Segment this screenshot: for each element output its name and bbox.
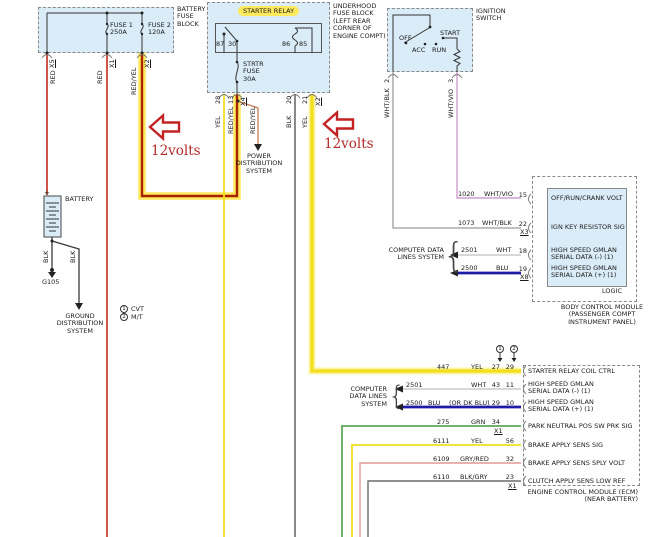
ecm-pin-29b: 29 <box>488 400 500 407</box>
wire-color-redyel-branch: RED/YEL <box>250 106 257 134</box>
12volts-note-1: 12volts <box>151 143 201 159</box>
bcm-desc-gmlan-plus: HIGH SPEED GMLAN SERIAL DATA (+) (1) <box>551 265 617 280</box>
wire-color-red-2: RED <box>97 70 104 84</box>
ecm-desc-brake-sply: BRAKE APPLY SENS SPLY VOLT <box>528 460 625 467</box>
bcm-color-blu: BLU <box>496 265 509 272</box>
legend-2-icon: 2 <box>120 313 128 321</box>
internal-circuit-lines <box>47 13 514 358</box>
terminal-20: 20 <box>286 96 293 104</box>
ecm-datalines-label: COMPUTER DATA LINES SYSTEM <box>337 386 387 408</box>
wiring-diagram: BATTERY FUSE BLOCK FUSE 1 250A FUSE 2 12… <box>0 0 650 537</box>
bcm-color-wht: WHT <box>496 247 511 254</box>
underhood-fuse-block-title: UNDERHOOD FUSE BLOCK (LEFT REAR CORNER O… <box>333 3 386 40</box>
strtr-fuse-element <box>236 62 238 82</box>
connector-x1-label: X1 <box>109 59 116 68</box>
battery-symbol <box>44 196 61 237</box>
fuse1-label: FUSE 1 250A <box>110 22 133 37</box>
wire-color-blk-gnd: BLK <box>70 251 77 263</box>
relay-pin-85: 85 <box>299 41 307 48</box>
ignition-terminal-3: 3 <box>448 79 455 83</box>
ignition-switch-title: IGNITION SWITCH <box>476 8 506 23</box>
bcm-pin-15: 15 <box>514 192 527 199</box>
ecm-caption: ENGINE CONTROL MODULE (ECM) (NEAR BATTER… <box>492 489 638 504</box>
ecm-color-wht: WHT <box>471 382 486 389</box>
wire-color-yel-87: YEL <box>215 116 222 128</box>
ecm-pin-10: 10 <box>502 400 514 407</box>
wire-color-redyel: RED/YEL <box>131 67 138 95</box>
wire-whtvio <box>457 72 521 198</box>
terminal-28: 28 <box>215 96 222 104</box>
starter-relay-label: STARTER RELAY <box>238 6 299 16</box>
legend-2-label: M/T <box>131 314 143 321</box>
battery-label: BATTERY <box>65 196 93 203</box>
ecm-column-arrow-stems <box>500 353 514 358</box>
fuse1-element <box>106 24 108 34</box>
ecm-color-yel-6111: YEL <box>471 438 483 445</box>
terminal-21: 21 <box>302 96 309 104</box>
connector-x5-label: X5 <box>49 59 56 68</box>
relay-pin-87: 87 <box>216 41 224 48</box>
ecm-brace: { <box>388 383 405 410</box>
wire-color-red-1: RED <box>50 70 57 84</box>
ecm-circuit-447: 447 <box>437 364 449 371</box>
ecm-circuit-6111: 6111 <box>433 438 450 445</box>
bcm-desc-ign-key: IGN KEY RESISTOR SIG <box>551 224 625 231</box>
bcm-circuit-2500: 2500 <box>461 265 478 272</box>
ecm-col2-mark-icon: 2 <box>510 345 518 353</box>
ignition-pos-off: OFF <box>399 35 412 42</box>
connector-x2b-label: X2 <box>315 97 322 106</box>
bcm-color-whtvio: WHT/VIO <box>484 191 513 198</box>
battery-fuse-block-title: BATTERY FUSE BLOCK <box>177 6 205 28</box>
ecm-desc-brake-sig: BRAKE APPLY SENS SIG <box>528 442 603 449</box>
bcm-circuit-2501: 2501 <box>461 247 478 254</box>
ecm-circuit-2501: 2501 <box>406 382 423 389</box>
ground-dist-arrow <box>75 303 83 310</box>
wire-color-blk-86: BLK <box>286 116 293 128</box>
ecm-circuit-6109: 6109 <box>433 456 450 463</box>
ecm-col1-mark-icon: 1 <box>496 345 504 353</box>
12volts-arrow-icon-1 <box>150 116 179 139</box>
wire-color-blk-g105: BLK <box>43 251 50 263</box>
ground-distribution-label: GROUND DISTRIBUTION SYSTEM <box>49 313 111 335</box>
ecm-pin-11: 11 <box>502 382 514 389</box>
ecm-pin-56: 56 <box>502 438 514 445</box>
relay-pin-30: 30 <box>228 41 236 48</box>
ecm-desc-gmlan-minus: HIGH SPEED GMLAN SERIAL DATA (-) (1) <box>528 381 594 396</box>
ecm-pin-27: 27 <box>488 364 500 371</box>
ecm-pin-43: 43 <box>488 382 500 389</box>
wires <box>47 53 521 537</box>
strtr-fuse-label: STRTR FUSE 30A <box>243 61 264 83</box>
power-distribution-label: POWER DISTRIBUTION SYSTEM <box>232 153 286 175</box>
ecm-connector-x1a: X1 <box>494 428 503 435</box>
connector-x2-label: X2 <box>144 59 151 68</box>
ignition-resistor <box>454 49 460 72</box>
ecm-circuit-275: 275 <box>437 419 449 426</box>
fuse2-element <box>141 24 143 34</box>
ecm-circuit-6110: 6110 <box>433 474 450 481</box>
junction-dots <box>46 12 445 273</box>
ecm-pin-29a: 29 <box>502 364 514 371</box>
wire-color-redyel-30: RED/YEL <box>228 106 235 134</box>
ignition-pos-start: START <box>440 30 460 37</box>
ground-ref-g105: G105 <box>42 279 59 286</box>
bcm-caption: BODY CONTROL MODULE (PASSENGER COMPT INS… <box>547 304 650 326</box>
legend-1-icon: 1 <box>120 305 128 313</box>
bcm-logic-label: LOGIC <box>601 288 623 295</box>
ecm-color-gryred: GRY/RED <box>460 456 489 463</box>
relay-pin-86: 86 <box>282 41 290 48</box>
ecm-col1-arrow <box>498 358 503 362</box>
bcm-desc-off-run-crank: OFF/RUN/CRANK VOLT <box>551 195 623 202</box>
ignition-pos-acc: ACC <box>412 47 425 54</box>
wire-color-yel-85: YEL <box>302 116 309 128</box>
ecm-color-note: (OR DK BLU) <box>449 400 490 407</box>
ecm-circuit-2500: 2500 <box>406 400 423 407</box>
ecm-pin-23: 23 <box>502 474 514 481</box>
ignition-pos-run: RUN <box>432 47 446 54</box>
ecm-desc-park-neutral: PARK NEUTRAL POS SW PRK SIG <box>528 423 633 430</box>
terminal-13: 13 <box>228 96 235 104</box>
ignition-terminal-2: 2 <box>384 79 391 83</box>
relay-coil <box>293 28 298 46</box>
wire-color-whtvio: WHT/VIO <box>448 89 455 118</box>
bcm-connector-x3: X3 <box>520 229 529 236</box>
12volts-note-2: 12volts <box>324 136 374 152</box>
power-dist-arrow <box>254 144 262 151</box>
ecm-color-blu: BLU <box>428 400 441 407</box>
ecm-desc-clutch-low-ref: CLUTCH APPLY SENS LOW REF <box>528 478 625 485</box>
wire-color-whtblk: WHT/BLK <box>384 88 391 118</box>
ecm-pin-34: 34 <box>488 419 500 426</box>
bcm-color-whtblk: WHT/BLK <box>482 220 512 227</box>
bcm-circuit-1020: 1020 <box>458 191 475 198</box>
ecm-col2-arrow <box>512 358 517 362</box>
ecm-color-grn: GRN <box>471 419 485 426</box>
ecm-desc-gmlan-plus: HIGH SPEED GMLAN SERIAL DATA (+) (1) <box>528 399 594 414</box>
fuse2-label: FUSE 2 120A <box>148 22 171 37</box>
bcm-circuit-1073: 1073 <box>458 220 475 227</box>
ecm-color-blkgry: BLK/GRY <box>460 474 488 481</box>
bcm-connector-x8: X8 <box>520 274 529 281</box>
ecm-color-yel-447: YEL <box>471 364 483 371</box>
ecm-pin-32: 32 <box>502 456 514 463</box>
bcm-datalines-label: COMPUTER DATA LINES SYSTEM <box>374 247 444 262</box>
bcm-pin-18: 18 <box>514 248 527 255</box>
ecm-desc-starter-relay: STARTER RELAY COIL CTRL <box>528 368 615 375</box>
connector-x4-label: X4 <box>240 97 247 106</box>
battery-plus-sign: + <box>44 189 50 197</box>
bcm-desc-gmlan-minus: HIGH SPEED GMLAN SERIAL DATA (-) (1) <box>551 247 617 262</box>
12volts-arrow-icon-2 <box>324 113 353 136</box>
